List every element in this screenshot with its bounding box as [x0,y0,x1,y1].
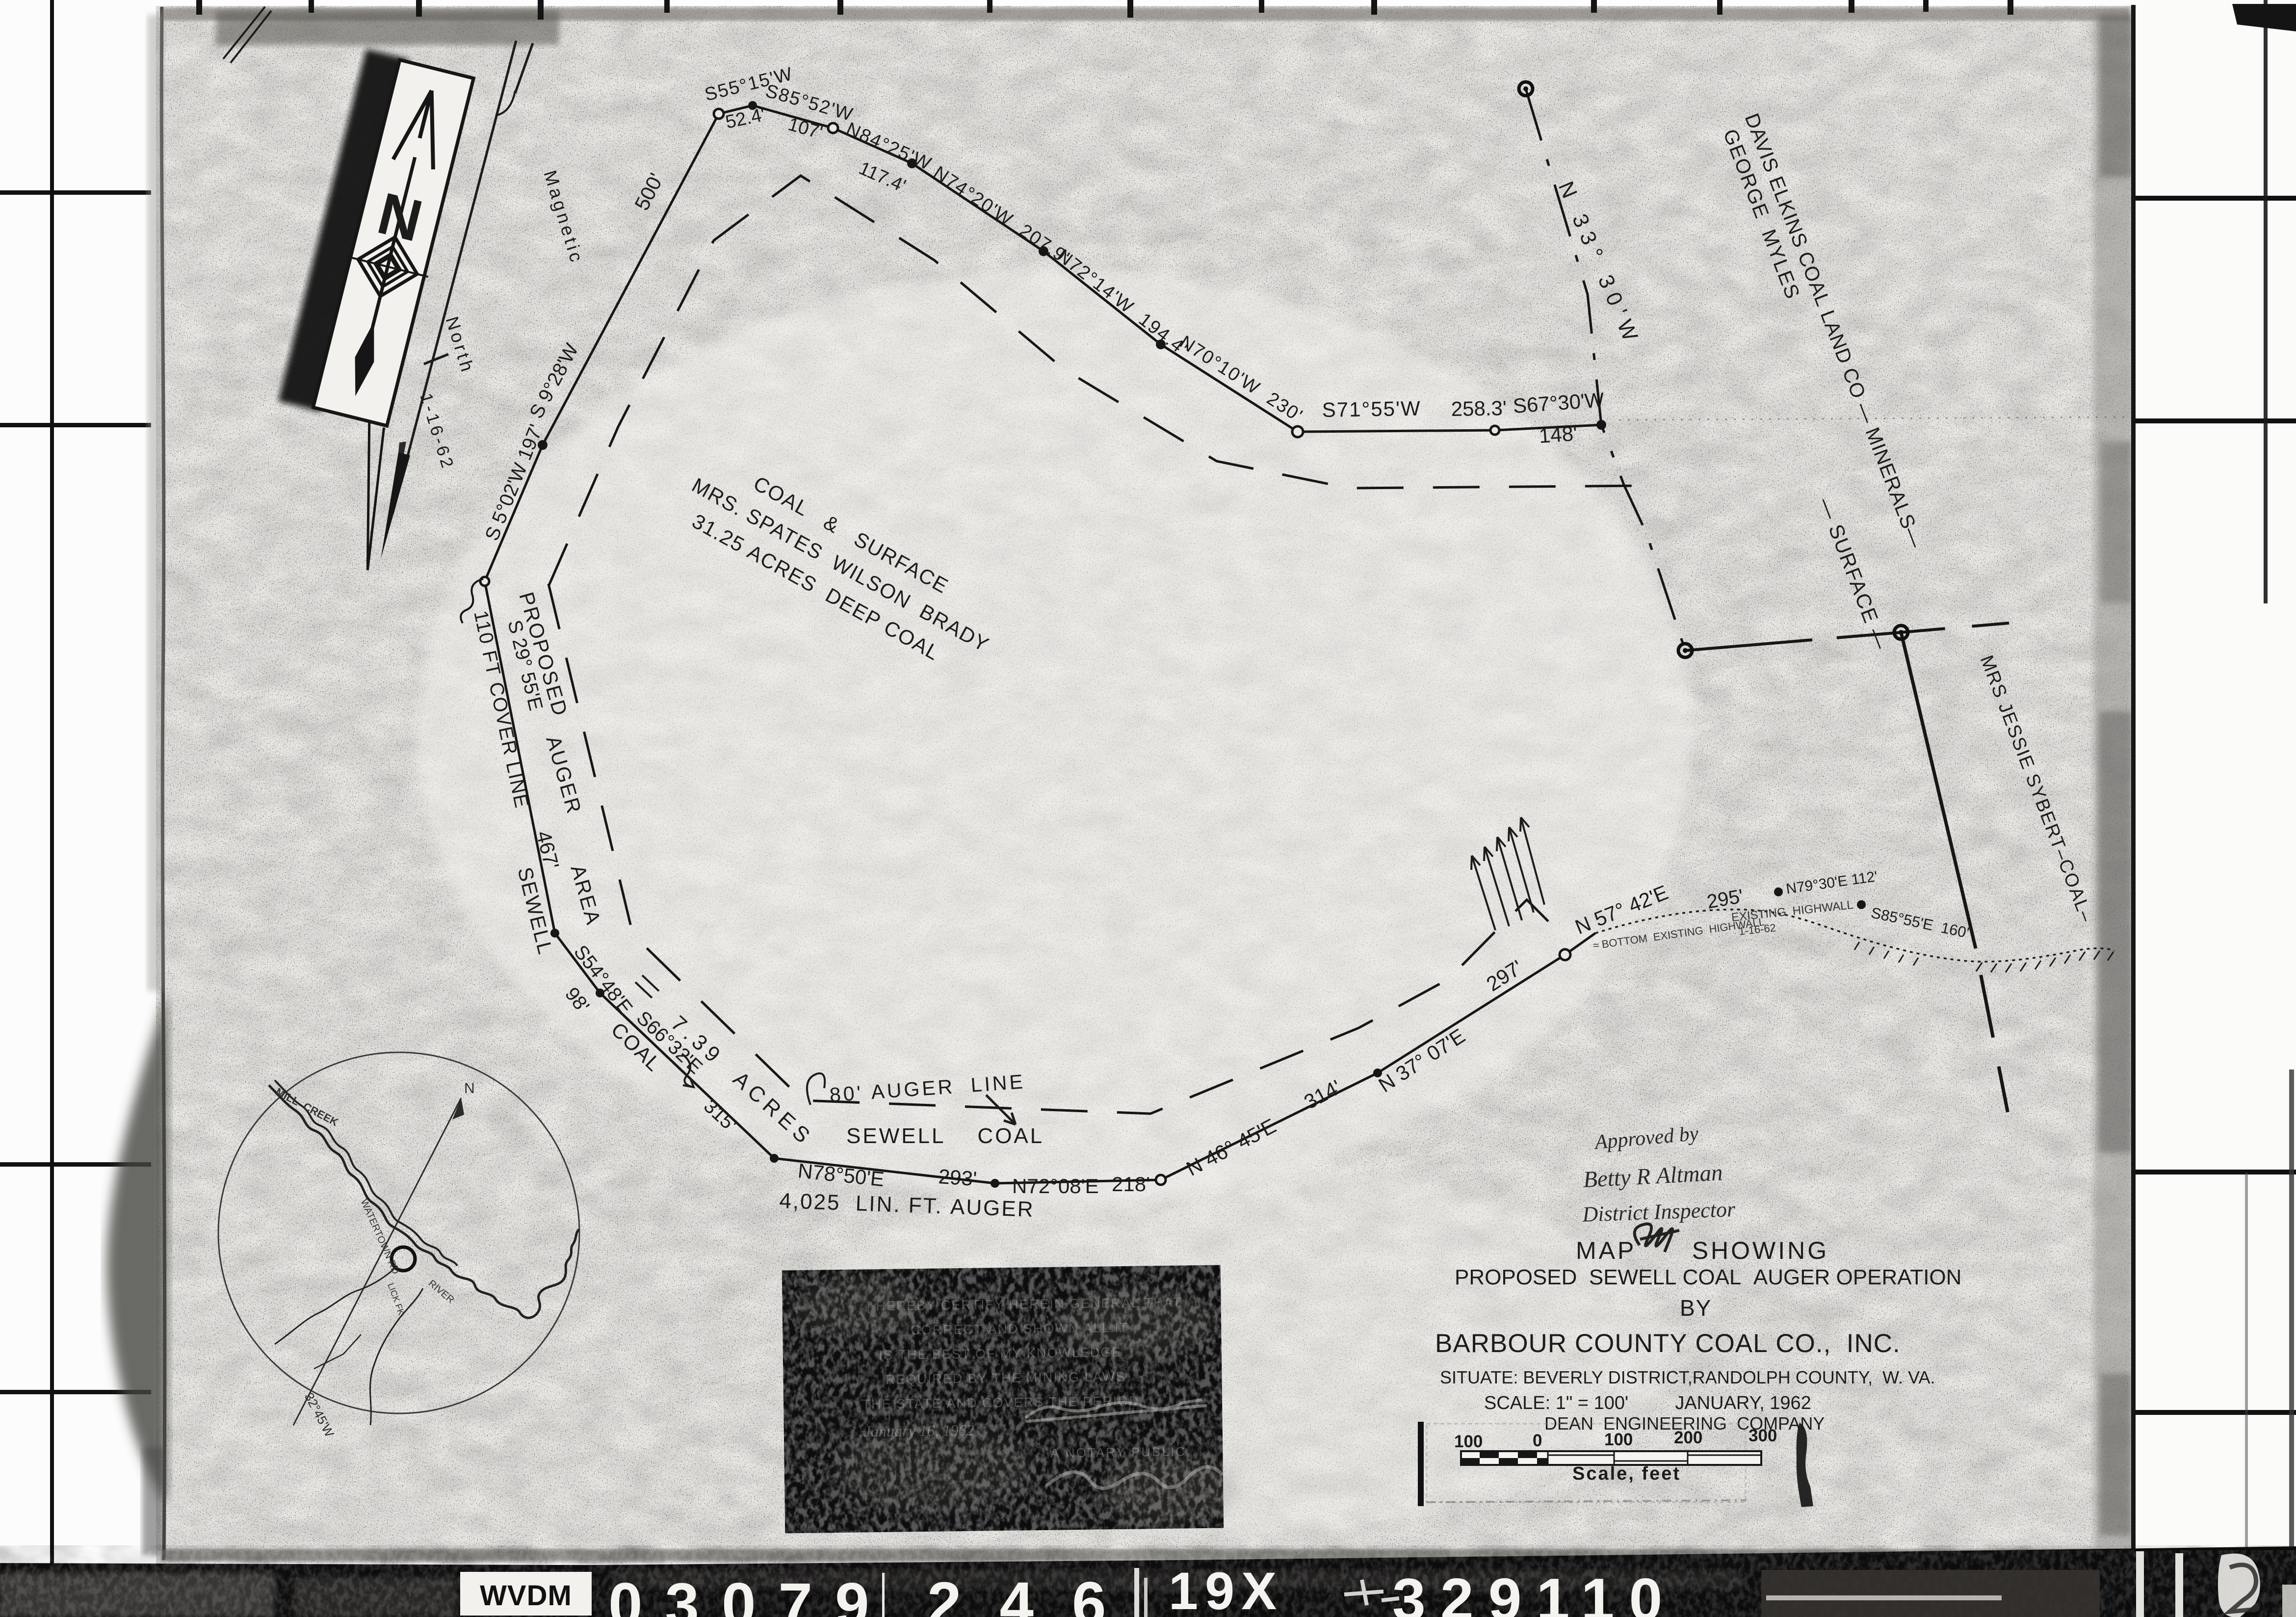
svg-text:100: 100 [1604,1430,1633,1449]
svg-text:19X: 19X [1169,1561,1283,1617]
svg-text:N: N [464,1080,475,1096]
svg-text:SCALE: 1" = 100' JANUA: SCALE: 1" = 100' JANUARY, 1962 [1484,1393,1811,1413]
svg-text:100: 100 [1454,1432,1483,1451]
svg-text:03079: 03079 [608,1571,892,1617]
svg-text:S71°55'W: S71°55'W [1322,396,1421,421]
svg-text:148': 148' [1538,422,1578,447]
svg-text:MAP SHOWING: MAP SHOWING [1576,1237,1829,1264]
svg-text:N72°08'E: N72°08'E [1012,1174,1099,1198]
svg-text:300: 300 [1748,1426,1777,1445]
svg-text:0: 0 [1533,1431,1542,1450]
svg-text:246: 246 [927,1570,1145,1617]
svg-text:293': 293' [938,1165,977,1190]
svg-text:SITUATE: BEVERLY DISTRICT,RAND: SITUATE: BEVERLY DISTRICT,RANDOLPH COUNT… [1440,1367,1935,1387]
svg-text:218': 218' [1112,1173,1150,1196]
svg-text:SEWELL COAL: SEWELL COAL [846,1124,1044,1148]
svg-text:Scale, feet: Scale, feet [1572,1463,1681,1484]
svg-text:329110: 329110 [1392,1566,1677,1617]
svg-text:200: 200 [1674,1428,1702,1447]
svg-text:WVDM: WVDM [480,1580,572,1612]
svg-text:PROPOSED SEWELL COAL AUGER O: PROPOSED SEWELL COAL AUGER OPERATION [1455,1265,1961,1289]
svg-text:BY: BY [1680,1295,1712,1321]
svg-text:258.3': 258.3' [1451,396,1507,420]
svg-text:BARBOUR COUNTY COAL CO., INC.: BARBOUR COUNTY COAL CO., INC. [1435,1329,1901,1358]
